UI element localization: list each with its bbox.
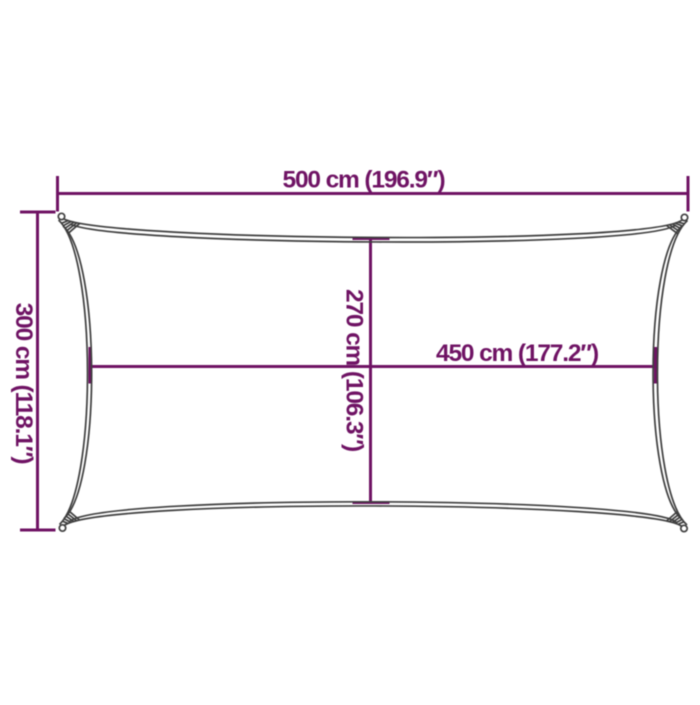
svg-text:270 cm (106.3″): 270 cm (106.3″) [341, 289, 368, 451]
svg-text:450 cm (177.2″): 450 cm (177.2″) [436, 340, 598, 367]
svg-text:300 cm (118.1″): 300 cm (118.1″) [10, 303, 37, 464]
svg-text:500 cm (196.9″): 500 cm (196.9″) [282, 167, 444, 194]
